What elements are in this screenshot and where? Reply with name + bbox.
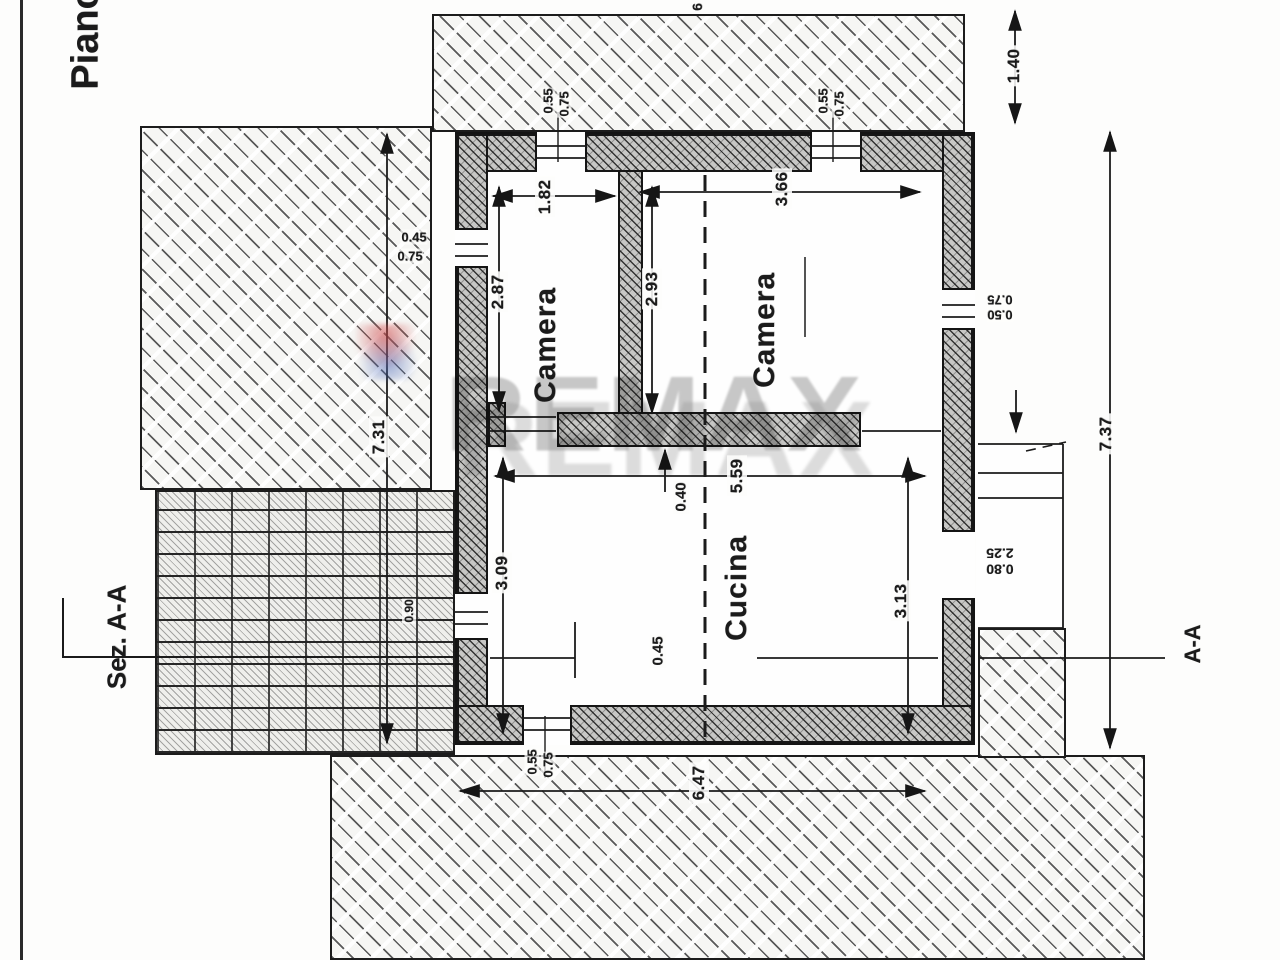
dim-camera-left-depth: 2.87	[488, 272, 508, 313]
window-bottom-height: 0.75	[541, 751, 556, 778]
room-label-camera-left: Camera	[529, 287, 563, 403]
door-right-label: 0.80 2.25	[986, 545, 1013, 576]
room-label-camera-right: Camera	[748, 272, 782, 388]
door-right-height: 2.25	[986, 545, 1013, 561]
dim-overall-height-left: 7.31	[369, 417, 389, 458]
section-label-left: Sez. A-A	[102, 585, 133, 690]
window-right-width: 0.50	[987, 307, 1012, 322]
remax-balloon-logo	[356, 324, 420, 380]
window-bottom-width: 0.55	[525, 748, 540, 775]
window-right-label: 0.50 0.75	[986, 292, 1013, 321]
section-label-right: A-A	[1180, 624, 1206, 663]
door-left-width: 0.90	[402, 598, 416, 623]
dim-overall-width-bottom: 6.47	[689, 763, 709, 804]
dim-overall-height-right: 7.37	[1096, 414, 1116, 455]
page-title: Piano	[65, 0, 108, 90]
window-top-right-height: 0.75	[832, 90, 847, 117]
dim-section-offset: 0.45	[650, 634, 667, 667]
dim-camera-left-width: 1.82	[535, 177, 555, 218]
window-top-left-height: 0.75	[557, 90, 572, 117]
window-left-height: 0.75	[396, 249, 423, 264]
dim-camera-right-width: 3.66	[772, 169, 792, 210]
room-label-cucina: Cucina	[720, 535, 754, 641]
edge-dimension-label: 6	[689, 3, 705, 11]
dim-cucina-width: 5.59	[727, 456, 747, 497]
dim-top-extension: 1.40	[1004, 46, 1024, 87]
window-left-width: 0.45	[400, 230, 427, 245]
window-top-right-width: 0.55	[816, 87, 831, 114]
remax-watermark: REMAX	[445, 353, 864, 476]
door-right-width: 0.80	[986, 561, 1013, 577]
dim-wall-thickness: 0.40	[673, 480, 690, 513]
window-top-left-width: 0.55	[541, 87, 556, 114]
dim-cucina-depth-right: 3.13	[891, 581, 911, 622]
dimension-linework	[0, 0, 1280, 960]
window-right-height: 0.75	[987, 292, 1012, 307]
floor-plan-sheet: REMAX Piano Sez. A-A A-A 6 Camera Camera…	[0, 0, 1280, 960]
dim-camera-right-depth: 2.93	[642, 269, 662, 310]
dim-cucina-depth-left: 3.09	[492, 553, 512, 594]
